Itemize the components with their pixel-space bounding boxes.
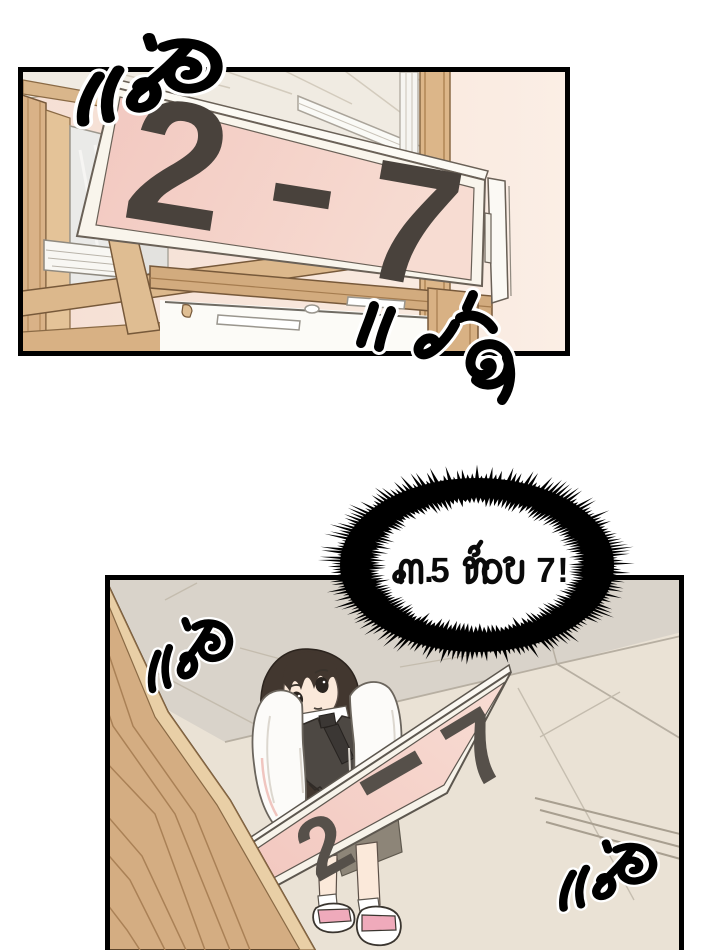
svg-text:5: 5: [430, 551, 449, 590]
svg-text:!: !: [557, 551, 569, 590]
svg-text:7: 7: [536, 551, 555, 590]
